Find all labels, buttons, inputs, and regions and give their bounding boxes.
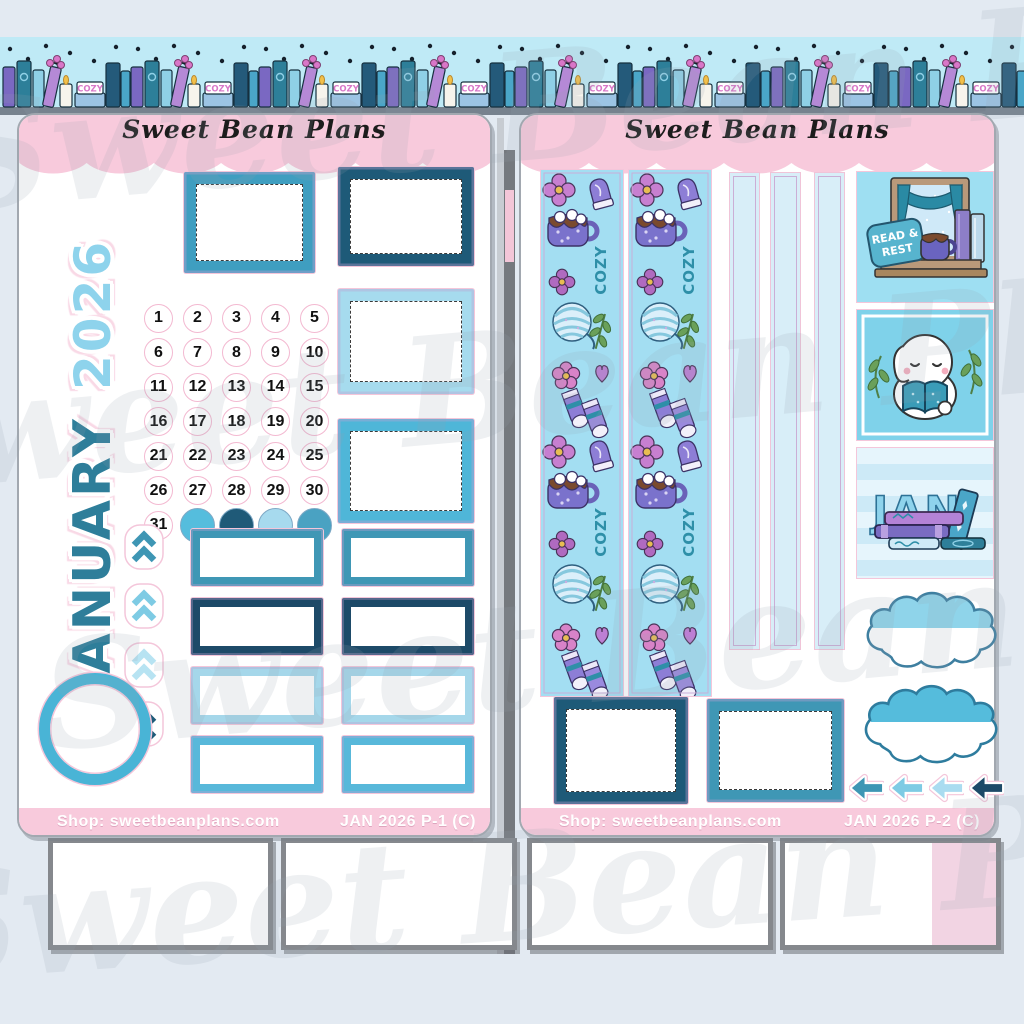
full-box-sticker (338, 419, 474, 523)
jan-books-sticker: JAN (857, 448, 993, 578)
half-box-sticker (342, 598, 474, 655)
arrow-left-icon (849, 773, 884, 803)
full-box-inner (350, 431, 462, 511)
date-sticker: 17 (178, 405, 217, 440)
arrow-left-icon (969, 773, 1004, 803)
date-sticker: 22 (178, 439, 217, 474)
page-divider (497, 118, 504, 954)
date-sticker: 7 (178, 336, 217, 371)
date-sticker: 29 (256, 474, 295, 509)
half-box-inner (351, 538, 465, 577)
month-label: JANUARY (63, 416, 123, 696)
date-sticker: 11 (139, 370, 178, 405)
date-sticker: 28 (217, 474, 256, 509)
half-box-sticker (342, 529, 474, 586)
full-box-inner (196, 184, 303, 261)
full-box-sticker (338, 289, 474, 394)
arrow-stickers (849, 773, 1004, 803)
cloud-sticker (860, 588, 1000, 674)
half-box-inner (351, 676, 465, 715)
sheet2-footer: Shop: sweetbeanplans.com JAN 2026 P-2 (C… (521, 808, 994, 835)
half-box-inner (200, 538, 314, 577)
sticker-sheet-1: Sweet Bean Plans JANUARY 2026 1234567891… (17, 113, 492, 837)
half-box-inner (200, 676, 314, 715)
bunny-reading-sticker (857, 310, 993, 440)
shop-url: Shop: sweetbeanplans.com (559, 813, 782, 831)
sheet1-footer: Shop: sweetbeanplans.com JAN 2026 P-1 (C… (19, 808, 490, 835)
date-sticker: 19 (256, 405, 295, 440)
half-box-inner (200, 607, 314, 646)
half-box-sticker (342, 667, 474, 724)
brand-title: Sweet Bean Plans (19, 115, 490, 144)
date-sticker: 16 (139, 405, 178, 440)
shop-url: Shop: sweetbeanplans.com (57, 813, 280, 831)
date-sticker: 20 (295, 405, 334, 440)
half-box-sticker (191, 529, 323, 586)
date-sticker: 12 (178, 370, 217, 405)
date-sticker: 2 (178, 301, 217, 336)
half-box-grid (191, 529, 474, 793)
arrow-left-icon (889, 773, 924, 803)
plain-strip (770, 172, 801, 650)
date-sticker: 8 (217, 336, 256, 371)
arrow-left-icon (929, 773, 964, 803)
full-box-inner (566, 709, 676, 792)
plain-strip (729, 172, 760, 650)
half-box-inner (351, 607, 465, 646)
half-box-inner (351, 745, 465, 784)
full-box-inner (350, 301, 462, 382)
strip-cut-line (774, 176, 797, 646)
date-sticker: 30 (295, 474, 334, 509)
sheet-code: JAN 2026 P-2 (C) (844, 813, 980, 831)
date-sticker: 4 (256, 301, 295, 336)
half-box-inner (200, 745, 314, 784)
book-icon (903, 381, 952, 414)
full-box-sticker (707, 699, 844, 802)
date-sticker: 15 (295, 370, 334, 405)
date-sticker: 5 (295, 301, 334, 336)
product-image: COZY (0, 0, 1024, 1024)
date-sticker: 9 (256, 336, 295, 371)
date-sticker: 24 (256, 439, 295, 474)
date-sticker: 18 (217, 405, 256, 440)
strip-cut-line (733, 176, 756, 646)
sheet-code: JAN 2026 P-1 (C) (340, 813, 476, 831)
planner-box (527, 838, 773, 950)
date-sticker: 26 (139, 474, 178, 509)
washi-strip (629, 170, 711, 696)
date-sticker: 10 (295, 336, 334, 371)
full-box-sticker (184, 172, 315, 273)
planner-box (780, 838, 1001, 950)
chevron-up-icon (123, 641, 165, 689)
date-sticker: 6 (139, 336, 178, 371)
planner-box (281, 838, 517, 950)
book-icon (971, 214, 984, 262)
book-icon (955, 210, 970, 262)
window-scene-sticker: READ & REST (857, 172, 993, 302)
half-box-sticker (191, 667, 323, 724)
full-box-sticker (338, 167, 474, 266)
cloud-sticker (858, 681, 1001, 769)
full-box-inner (350, 179, 462, 254)
chevron-up-icon (123, 582, 165, 630)
date-sticker: 14 (256, 370, 295, 405)
sheet2-header: Sweet Bean Plans (521, 115, 994, 159)
date-sticker: 23 (217, 439, 256, 474)
sheet1-header: Sweet Bean Plans (19, 115, 490, 159)
pillow-icon: READ & REST (866, 217, 926, 268)
plain-strip (814, 172, 845, 650)
half-box-sticker (342, 736, 474, 793)
full-box-sticker (554, 697, 688, 804)
sticker-sheet-2: Sweet Bean Plans (519, 113, 996, 837)
date-sticker: 21 (139, 439, 178, 474)
washi-strip (541, 170, 623, 696)
date-sticker: 3 (217, 301, 256, 336)
half-box-sticker (191, 598, 323, 655)
chevron-up-icon (123, 523, 165, 571)
full-box-inner (719, 711, 832, 790)
year-label: 2026 (64, 239, 122, 390)
page-divider (504, 150, 515, 954)
planner-pink-column (932, 843, 996, 945)
date-grid: 1234567891011121314151617181920212223242… (139, 301, 334, 543)
date-sticker: 27 (178, 474, 217, 509)
date-sticker: 25 (295, 439, 334, 474)
date-sticker: 1 (139, 301, 178, 336)
book-icon (885, 512, 963, 525)
date-sticker: 13 (217, 370, 256, 405)
strip-cut-line (818, 176, 841, 646)
bookshelf-banner (0, 37, 1024, 115)
circle-sticker (39, 673, 151, 785)
brand-title: Sweet Bean Plans (521, 115, 994, 144)
half-box-sticker (191, 736, 323, 793)
planner-box (48, 838, 273, 950)
page-divider-pink (505, 190, 514, 262)
